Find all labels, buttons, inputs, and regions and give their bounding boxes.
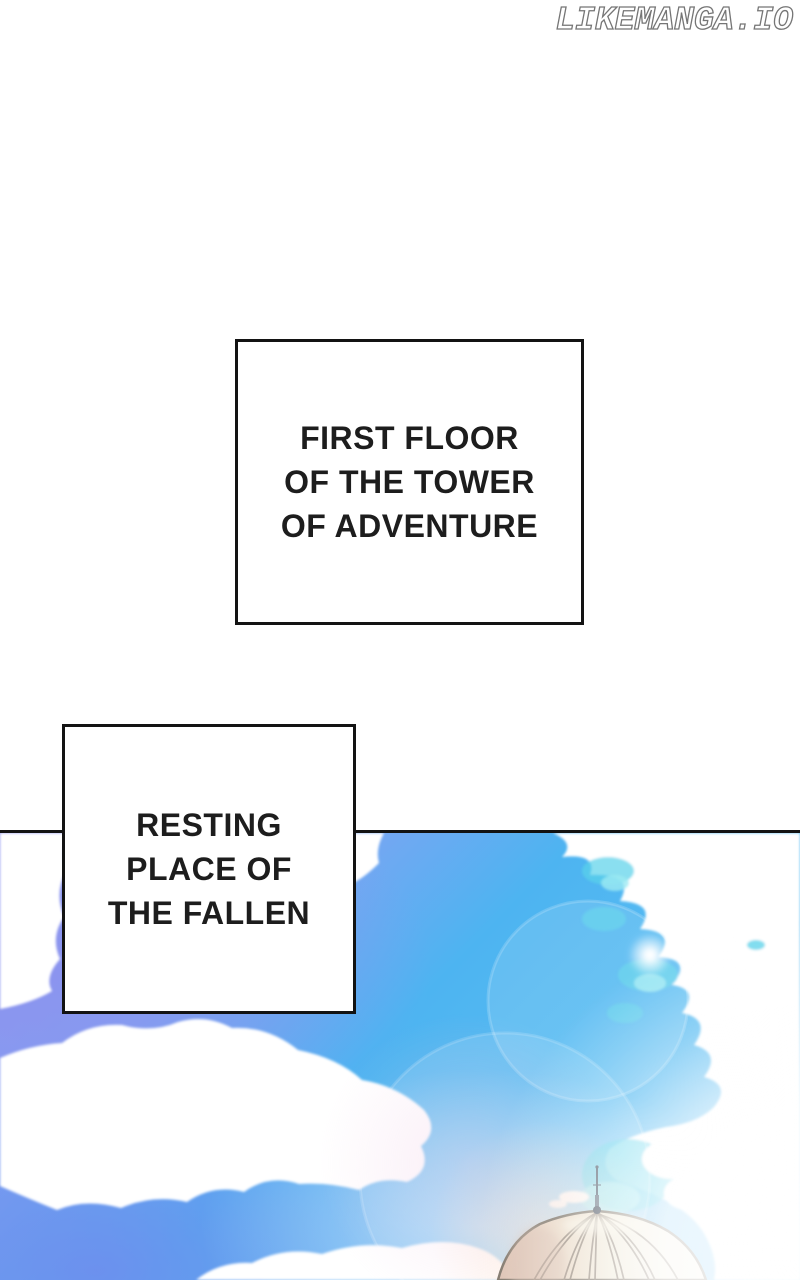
caption-line: RESTING xyxy=(136,803,282,847)
caption-box-tower-floor: FIRST FLOOR OF THE TOWER OF ADVENTURE xyxy=(235,339,584,625)
caption-line: PLACE OF xyxy=(126,847,292,891)
caption-box-resting-place: RESTING PLACE OF THE FALLEN xyxy=(62,724,356,1014)
caption-line: THE FALLEN xyxy=(108,891,310,935)
manga-page: LIKEMANGA.IO xyxy=(0,0,800,1280)
site-watermark: LIKEMANGA.IO xyxy=(555,2,793,39)
caption-line: OF ADVENTURE xyxy=(281,504,538,548)
caption-line: FIRST FLOOR xyxy=(300,416,519,460)
caption-line: OF THE TOWER xyxy=(284,460,535,504)
